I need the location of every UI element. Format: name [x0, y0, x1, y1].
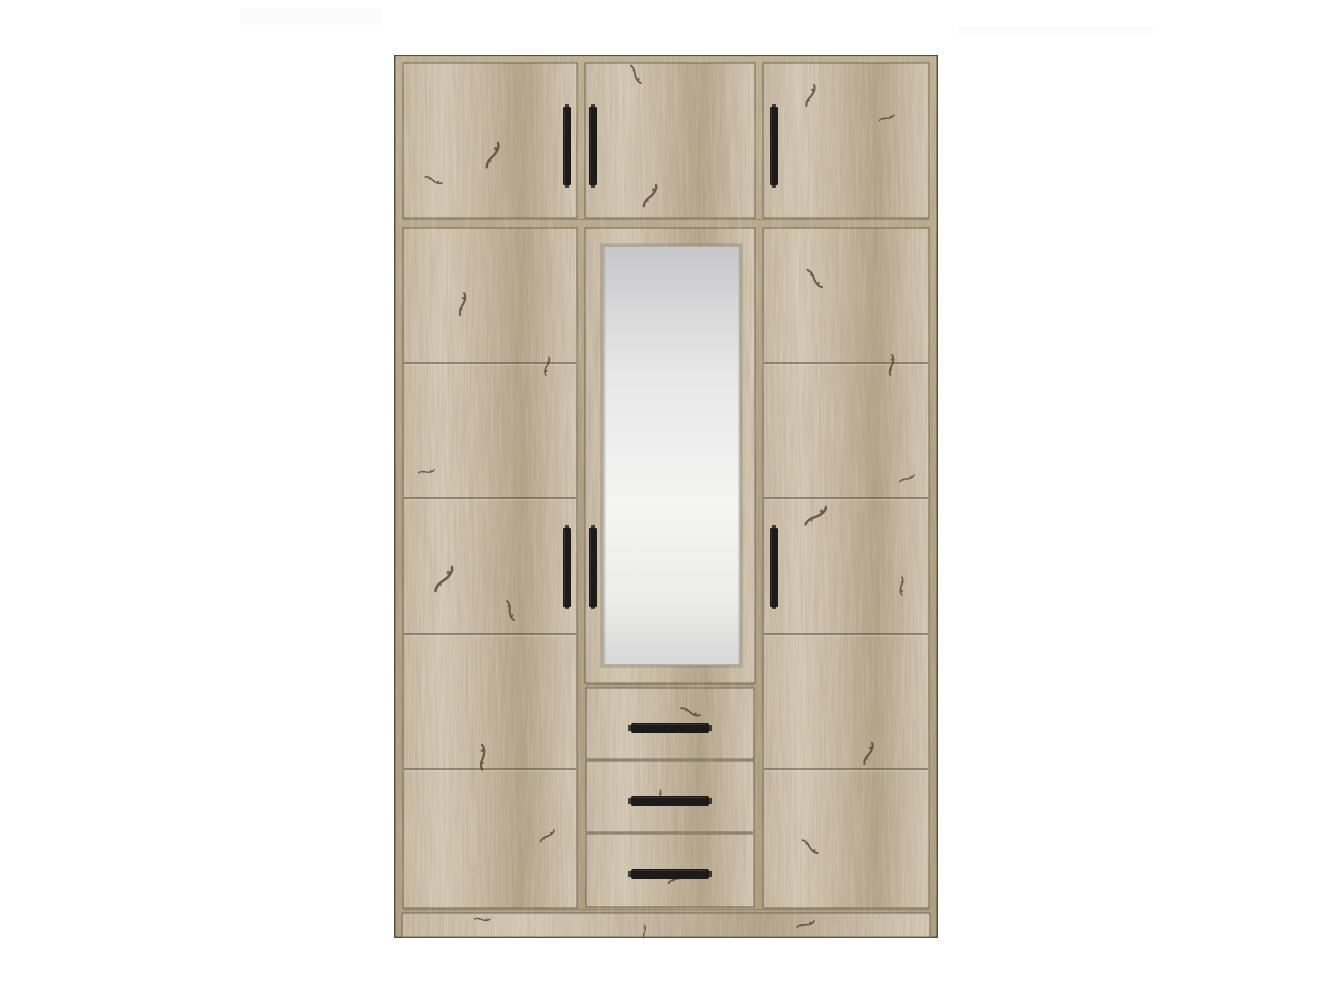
watermark-ghost: [240, 8, 382, 25]
wardrobe-product-image: [394, 55, 938, 938]
mirror-glass: [603, 246, 740, 665]
watermark-ghost: [958, 26, 1153, 36]
photo-canvas: [0, 0, 1340, 1005]
mirror: [601, 244, 742, 667]
